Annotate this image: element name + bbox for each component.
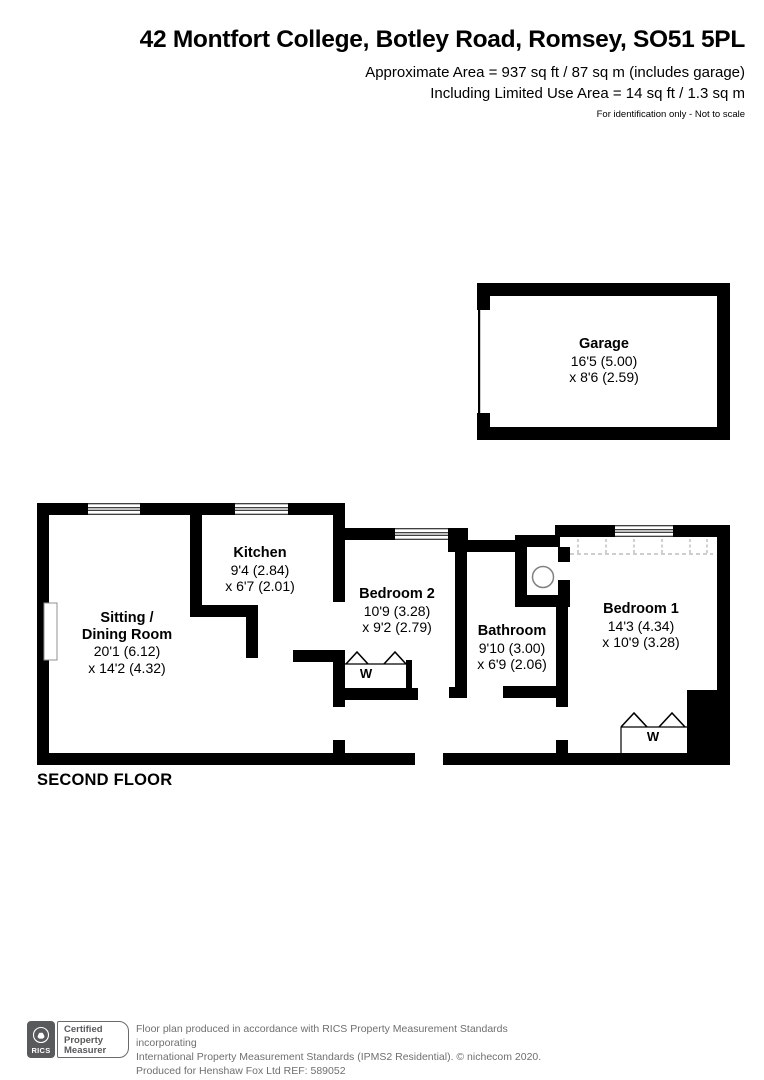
rics-lion-icon [27,1021,55,1047]
floor-name-label: SECOND FLOOR [37,771,172,790]
floorplan-drawing [0,0,764,1080]
sitting-room-wall-recess [44,603,57,660]
window-bedroom2 [395,528,448,540]
limited-use-dashed-lines [570,539,713,554]
window-sitting-room [88,503,140,515]
bedroom2-label: Bedroom 2 10'9 (3.28) x 9'2 (2.79) [359,586,435,636]
bathroom-label: Bathroom 9'10 (3.00) x 6'9 (2.06) [477,623,547,673]
floorplan-page: { "header": { "title": "42 Montfort Coll… [0,0,764,1080]
sitting-dining-room-label: Sitting / Dining Room 20'1 (6.12) x 14'2… [82,610,172,676]
kitchen-label: Kitchen 9'4 (2.84) x 6'7 (2.01) [225,545,295,595]
cylinder-symbol [533,567,554,588]
footer-line-1: Floor plan produced in accordance with R… [136,1022,566,1050]
window-kitchen [235,503,288,515]
garage-label: Garage 16'5 (5.00) x 8'6 (2.59) [569,336,639,386]
bedroom1-label: Bedroom 1 14'3 (4.34) x 10'9 (3.28) [602,601,679,651]
footer-disclaimer: Floor plan produced in accordance with R… [136,1022,566,1078]
footer-line-2: International Property Measurement Stand… [136,1050,566,1064]
wardrobe-symbol-bedroom2 [345,652,406,664]
bedroom2-wardrobe-label: W [360,666,372,681]
garage-door-line [478,310,480,413]
certified-property-measurer-badge: Certified Property Measurer [57,1021,129,1058]
rics-logo: RICS [27,1021,55,1058]
footer-line-3: Produced for Henshaw Fox Ltd REF: 589052 [136,1064,566,1078]
window-bedroom1 [615,525,673,537]
bedroom1-wardrobe-label: W [647,729,659,744]
rics-logo-text: RICS [27,1046,55,1055]
